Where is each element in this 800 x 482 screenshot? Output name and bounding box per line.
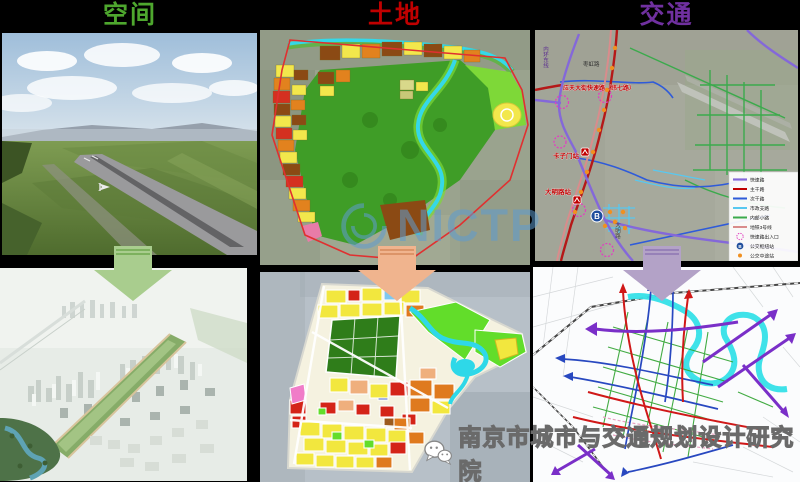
zaohong-road-label: 枣虹路 (583, 60, 600, 68)
transport-satellite-map: B 卡子门站 大明路站 应天大街快速路（纬七路） 枣虹路 内环东线 大明路 快速… (535, 30, 798, 261)
column-title-space: 空间 (2, 0, 258, 30)
daming-road-label: 大明路 (614, 221, 621, 240)
planning-slide: 空间 土地 交通 (0, 0, 800, 482)
transport-legend: 快速路 主干路 次干路 市政支路 内部小路 地铁3号线 快速路出入口 B 公交枢… (729, 172, 798, 261)
yingtian-expressway-label: 应天大街快速路（纬七路） (563, 84, 635, 92)
bus-hub-icon: B (591, 210, 603, 222)
legend-label: 地铁3号线 (750, 224, 772, 231)
legend-label: 公交中途站 (750, 253, 774, 260)
transport-down-arrow (622, 246, 702, 302)
column-title-land: 土地 (260, 0, 530, 30)
landuse-satellite-map (260, 30, 530, 265)
legend-label: 公交枢纽站 (750, 243, 774, 250)
aerial-photo-airfield (2, 33, 257, 255)
kazimen-station-label: 卡子门站 (553, 151, 580, 160)
column-title-transport: 交通 (533, 0, 800, 30)
daminglu-station-label: 大明路站 (545, 187, 572, 196)
land-down-arrow (357, 246, 437, 302)
legend-label: 主干路 (750, 186, 765, 193)
footer-credit: 南京市城市与交通规划设计研究院 (424, 435, 798, 469)
space-down-arrow (93, 246, 173, 302)
legend-label: 内部小路 (750, 215, 769, 222)
legend-swatch-bus-stop (738, 254, 742, 258)
ring-road-label: 内环东线 (542, 45, 549, 69)
wechat-icon (424, 439, 452, 466)
footer-credit-text: 南京市城市与交通规划设计研究院 (458, 418, 798, 482)
legend-label: 次干路 (750, 196, 765, 203)
legend-label: 快速路 (750, 177, 765, 184)
legend-label: 市政支路 (750, 205, 769, 212)
haze-band (2, 129, 257, 143)
legend-label: 快速路出入口 (750, 234, 779, 241)
golf-parcel (493, 103, 521, 127)
svg-text:B: B (594, 212, 600, 221)
